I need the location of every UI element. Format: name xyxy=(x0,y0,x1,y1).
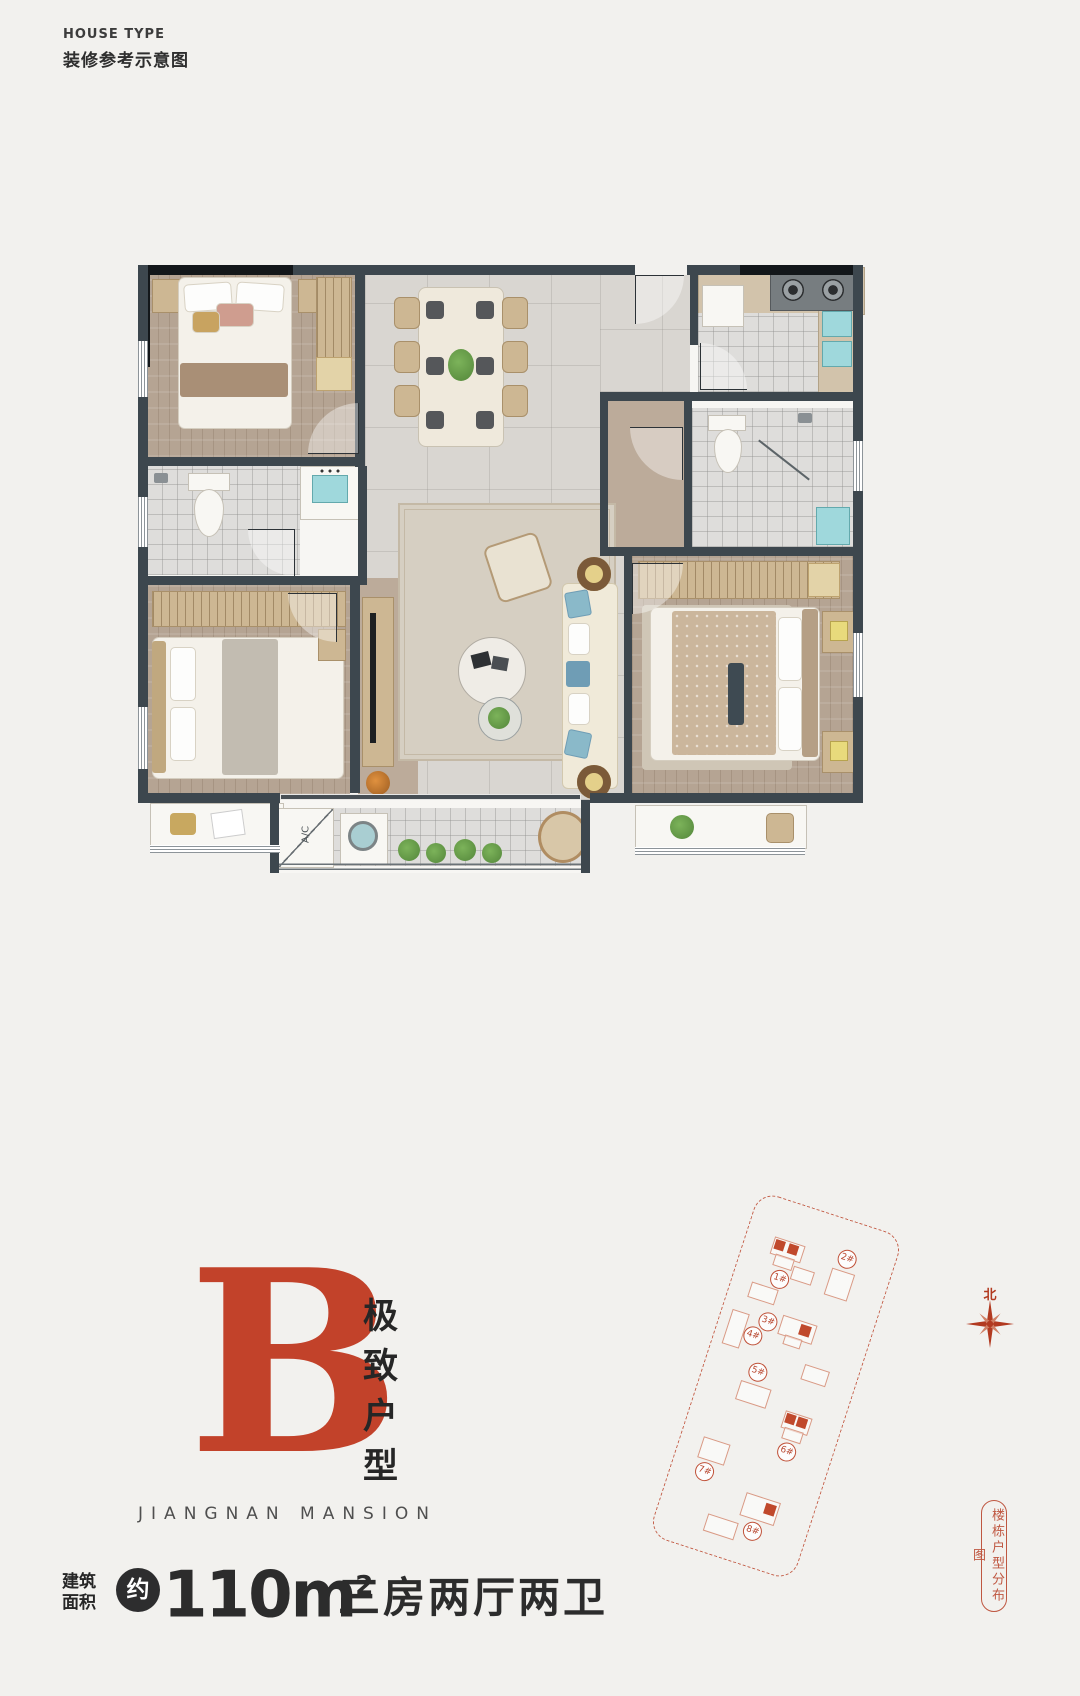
area-label-bottom: 面积 xyxy=(62,1593,96,1614)
unit-tagline: 极致户型 xyxy=(352,1297,403,1497)
place-setting xyxy=(426,301,444,319)
accent-pillow xyxy=(192,311,220,333)
bed-throw xyxy=(728,663,744,725)
balcony-plant xyxy=(454,839,476,861)
wall-kitchen-left xyxy=(690,265,698,345)
bed-blanket xyxy=(222,639,278,775)
building-label: 6# xyxy=(775,1440,799,1464)
window xyxy=(138,707,148,769)
wall-right xyxy=(853,265,863,803)
window xyxy=(138,497,148,547)
wardrobe-shoes xyxy=(808,563,840,597)
window-bed2-bay xyxy=(150,845,280,853)
place-setting xyxy=(476,301,494,319)
floor-plan: A/C xyxy=(130,245,870,875)
magazine xyxy=(491,656,509,672)
dining-chair xyxy=(394,385,420,417)
building-footprint xyxy=(800,1364,830,1387)
header-eyebrow: HOUSE TYPE xyxy=(63,27,165,42)
pillow xyxy=(170,707,196,761)
area-label-top: 建筑 xyxy=(62,1572,96,1593)
washer-door xyxy=(348,821,378,851)
building-label: 2# xyxy=(835,1247,859,1271)
place-setting xyxy=(426,357,444,375)
building-label: 7# xyxy=(693,1460,717,1484)
wall-bath1-bottom xyxy=(138,576,367,585)
shower-head-icon xyxy=(798,413,812,423)
dining-chair xyxy=(502,385,528,417)
balcony-plant xyxy=(398,839,420,861)
plant xyxy=(670,815,694,839)
kitchen-sink xyxy=(822,341,852,367)
header-title: 装修参考示意图 xyxy=(63,46,189,71)
window-master-bay xyxy=(635,847,805,855)
sofa-pillow xyxy=(568,693,590,725)
ac-label: A/C xyxy=(301,808,312,862)
ac-unit: A/C xyxy=(278,808,334,868)
wall-master-left xyxy=(624,556,632,793)
table-plant xyxy=(448,349,474,381)
wall-top-right-black xyxy=(740,265,863,275)
side-table xyxy=(577,557,611,591)
area-number: 110m xyxy=(163,1558,355,1632)
burner xyxy=(822,279,844,301)
coffee-table xyxy=(458,637,526,705)
lamp xyxy=(830,621,848,641)
site-plan: 1# 2# 3# 4# 5# 6# 7# xyxy=(648,1190,904,1581)
wall-bath1-right xyxy=(358,466,367,585)
wall-top-black xyxy=(138,265,293,275)
poster: HOUSE TYPE 装修参考示意图 xyxy=(0,0,1080,1696)
bench-decor xyxy=(170,813,196,835)
wall-bed2-right xyxy=(350,585,360,793)
compass-icon xyxy=(966,1300,1014,1352)
wall-bath2-bottom xyxy=(600,547,863,556)
layout-text: 三房两厅两卫 xyxy=(338,1564,608,1625)
wall-bottom-left xyxy=(138,793,280,803)
balcony-railing xyxy=(270,863,590,870)
sofa-pillow xyxy=(566,661,590,687)
kitchen-sink xyxy=(822,311,852,337)
site-plan-caption: 楼栋户型分布图 xyxy=(981,1500,1007,1612)
building-label: 5# xyxy=(746,1360,770,1384)
wardrobe-shoes xyxy=(316,357,352,391)
dining-chair xyxy=(394,341,420,373)
sofa-pillow xyxy=(564,589,592,619)
pillow xyxy=(778,617,802,681)
dining-chair xyxy=(394,297,420,329)
area-label: 建筑 面积 xyxy=(62,1572,96,1614)
vanity-sink xyxy=(312,475,348,503)
dining-chair xyxy=(502,297,528,329)
brand-name: JIANGNAN MANSION xyxy=(120,1504,455,1524)
wall-kitchen-bottom xyxy=(600,392,863,401)
tv xyxy=(370,613,376,743)
wall-bottom-right xyxy=(590,793,863,803)
balcony-glass-door xyxy=(280,794,581,800)
tv-console xyxy=(362,597,394,767)
bed-blanket xyxy=(180,363,288,397)
window xyxy=(853,633,863,697)
approx-badge: 约 xyxy=(116,1568,160,1612)
building-label: 8# xyxy=(740,1519,764,1543)
window xyxy=(853,441,863,491)
bathroom2-sink xyxy=(816,507,850,545)
place-setting xyxy=(426,411,444,429)
balcony-plant xyxy=(426,843,446,863)
place-setting xyxy=(476,411,494,429)
pillow xyxy=(170,647,196,701)
accent-pillow xyxy=(216,303,254,327)
basket xyxy=(766,813,794,843)
wall-bed1-bottom xyxy=(147,457,355,466)
dining-chair xyxy=(502,341,528,373)
headboard xyxy=(152,641,166,773)
place-setting xyxy=(476,357,494,375)
shower-head-icon xyxy=(154,473,168,483)
fridge xyxy=(702,285,744,327)
flower-pot xyxy=(366,771,390,795)
balcony-plant xyxy=(482,843,502,863)
table-plant xyxy=(488,707,510,729)
burner xyxy=(782,279,804,301)
wall-bath2-left xyxy=(684,400,692,547)
faucet-dots xyxy=(318,469,342,473)
lamp xyxy=(830,741,848,761)
pillow xyxy=(778,687,802,751)
sofa-pillow xyxy=(568,623,590,655)
building-footprint xyxy=(703,1513,739,1540)
headboard xyxy=(802,609,818,757)
bench-book xyxy=(210,809,245,839)
wall-balcony-right xyxy=(581,800,590,873)
entry-door-gap xyxy=(635,265,687,275)
patterned-blanket xyxy=(672,611,776,755)
building-footprint xyxy=(790,1266,815,1286)
wall-balcony-left xyxy=(270,800,279,873)
wall-hall-left xyxy=(600,392,608,555)
window xyxy=(138,341,148,397)
